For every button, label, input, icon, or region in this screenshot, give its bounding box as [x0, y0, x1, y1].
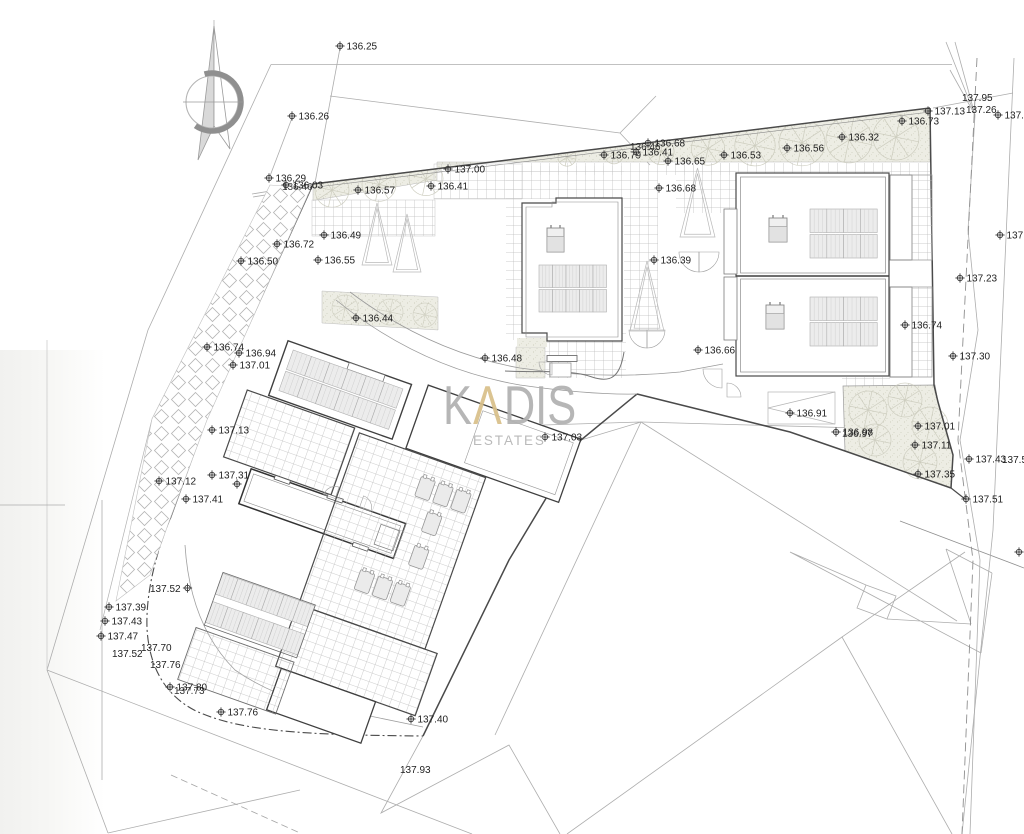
svg-text:136.73: 136.73	[909, 117, 940, 128]
svg-text:137.01: 137.01	[240, 361, 271, 372]
svg-text:137.31: 137.31	[219, 471, 250, 482]
svg-text:136.72: 136.72	[284, 240, 315, 251]
svg-text:K: K	[443, 374, 472, 436]
svg-text:137.95: 137.95	[962, 93, 993, 104]
svg-text:ESTATES: ESTATES	[473, 433, 546, 448]
svg-text:136.91: 136.91	[797, 409, 828, 420]
svg-text:137.93: 137.93	[400, 765, 431, 776]
svg-text:137.30: 137.30	[960, 352, 991, 363]
svg-text:137.23: 137.23	[967, 274, 998, 285]
svg-text:137.76: 137.76	[228, 708, 259, 719]
svg-text:136.32: 136.32	[849, 133, 880, 144]
svg-text:137.11: 137.11	[922, 441, 952, 452]
svg-text:136.53: 136.53	[731, 151, 762, 162]
svg-text:137.39: 137.39	[116, 603, 147, 614]
svg-text:136.44: 136.44	[363, 314, 394, 325]
svg-text:137.52: 137.52	[150, 584, 181, 595]
svg-text:137.00: 137.00	[455, 165, 486, 176]
svg-text:136.94: 136.94	[246, 349, 277, 360]
svg-text:137.26: 137.26	[966, 105, 997, 116]
svg-text:136.26: 136.26	[299, 112, 330, 123]
svg-text:137.43: 137.43	[112, 617, 143, 628]
svg-text:137.2: 137.2	[1005, 111, 1024, 122]
svg-text:137.73: 137.73	[174, 686, 205, 697]
svg-text:137.47: 137.47	[108, 632, 139, 643]
svg-text:137.51: 137.51	[973, 495, 1004, 506]
svg-text:136.46: 136.46	[630, 142, 661, 153]
svg-text:136.66: 136.66	[705, 346, 736, 357]
svg-text:136.56: 136.56	[794, 144, 825, 155]
svg-text:137.76: 137.76	[150, 660, 181, 671]
svg-text:137.13: 137.13	[219, 426, 250, 437]
svg-text:DIS: DIS	[504, 374, 576, 436]
svg-text:136.39: 136.39	[661, 256, 692, 267]
svg-text:137.35: 137.35	[925, 470, 956, 481]
svg-text:136.46: 136.46	[282, 182, 313, 193]
svg-text:136.74: 136.74	[912, 321, 943, 332]
svg-text:136.41: 136.41	[438, 182, 469, 193]
svg-text:137.40: 137.40	[418, 715, 449, 726]
svg-text:136.57: 136.57	[365, 186, 396, 197]
svg-text:137.13: 137.13	[935, 107, 966, 118]
svg-text:Λ: Λ	[473, 374, 502, 436]
svg-text:136.48: 136.48	[492, 354, 523, 365]
svg-text:136.25: 136.25	[347, 42, 378, 53]
svg-text:136.65: 136.65	[675, 157, 706, 168]
svg-text:137.12: 137.12	[166, 477, 197, 488]
svg-text:136.97: 136.97	[842, 429, 873, 440]
svg-text:136.74: 136.74	[214, 343, 245, 354]
svg-text:136.55: 136.55	[325, 256, 356, 267]
svg-text:137.52: 137.52	[112, 649, 143, 660]
svg-text:137.01: 137.01	[925, 422, 956, 433]
svg-text:136.68: 136.68	[666, 184, 697, 195]
svg-text:137.: 137.	[1007, 231, 1024, 242]
svg-text:136.49: 136.49	[331, 231, 362, 242]
svg-text:136.50: 136.50	[248, 257, 279, 268]
svg-text:137.41: 137.41	[193, 495, 224, 506]
svg-text:137.52: 137.52	[1002, 455, 1024, 466]
svg-text:137.70: 137.70	[141, 643, 172, 654]
